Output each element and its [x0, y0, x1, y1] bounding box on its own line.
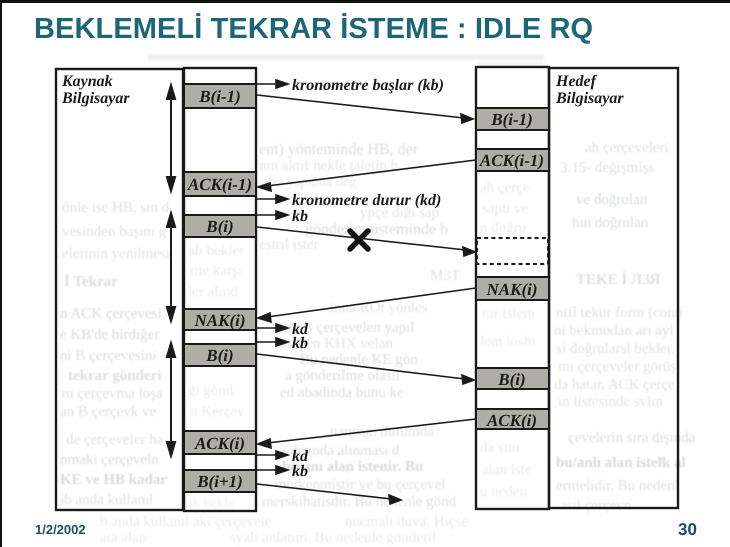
svg-text:B(i+1): B(i+1)	[196, 472, 243, 491]
svg-text:ACK(i): ACK(i)	[486, 411, 537, 430]
svg-text:kronometre durur (kd): kronometre durur (kd)	[292, 192, 441, 209]
svg-text:Hedef: Hedef	[555, 73, 598, 90]
svg-text:B(i-1): B(i-1)	[198, 87, 241, 106]
svg-text:Bilgisayar: Bilgisayar	[555, 90, 624, 107]
svg-text:kronometre başlar (kb): kronometre başlar (kb)	[292, 77, 444, 94]
svg-text:NAK(i): NAK(i)	[486, 280, 538, 299]
svg-text:Kaynak: Kaynak	[61, 73, 113, 90]
svg-text:ACK(i-1): ACK(i-1)	[187, 175, 252, 194]
svg-text:ACK(i-1): ACK(i-1)	[479, 151, 544, 170]
svg-text:B(i): B(i)	[497, 370, 525, 389]
svg-text:kb: kb	[292, 335, 308, 352]
svg-text:B(i): B(i)	[205, 346, 233, 365]
svg-text:B(i-1): B(i-1)	[490, 110, 533, 129]
svg-text:Bilgisayar: Bilgisayar	[61, 90, 130, 107]
svg-text:NAK(i): NAK(i)	[194, 311, 246, 330]
svg-text:B(i): B(i)	[205, 217, 233, 236]
svg-text:kb: kb	[292, 463, 308, 480]
svg-text:kb: kb	[292, 208, 308, 225]
svg-text:ACK(i): ACK(i)	[194, 434, 245, 453]
